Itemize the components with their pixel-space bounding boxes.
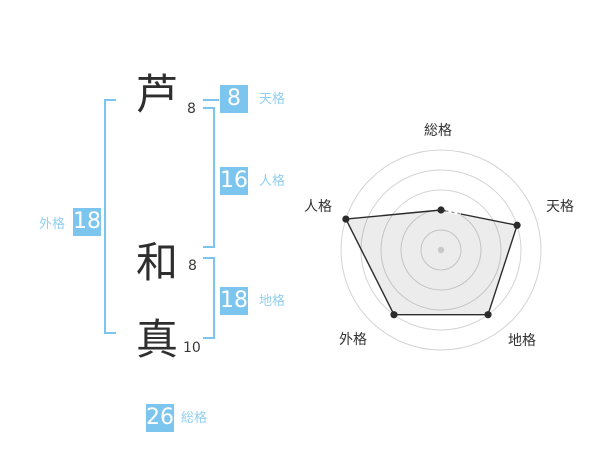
radar-vertex-dot — [342, 215, 349, 222]
radar-axis-label: 地格 — [508, 333, 536, 349]
name-char-1: 芦 — [136, 74, 178, 116]
jinkaku-bracket — [203, 107, 215, 248]
radar-chart: 総格天格地格外格人格 — [296, 105, 586, 395]
gaikaku-label: 外格 — [39, 218, 65, 231]
gaikaku-value-box: 18 — [73, 208, 101, 236]
radar-axis-label: 人格 — [304, 199, 332, 215]
radar-center-dot — [438, 247, 444, 253]
soukaku-value-box: 26 — [146, 404, 174, 432]
radar-data-polygon — [346, 210, 517, 315]
name-fortune-chart: 芦 8 和 8 真 10 8 天格 16 人格 18 地格 外格 18 26 総… — [0, 0, 600, 470]
tenkaku-value-box: 8 — [220, 85, 248, 113]
radar-axis-label: 総格 — [424, 123, 452, 139]
name-char-3: 真 — [136, 319, 178, 361]
stroke-count-2: 8 — [188, 259, 197, 273]
chikaku-bracket — [203, 257, 215, 339]
stroke-count-1: 8 — [187, 102, 196, 116]
soukaku-label: 総格 — [181, 412, 207, 425]
radar-axis-label: 外格 — [339, 332, 367, 348]
tenkaku-tick — [203, 99, 219, 101]
name-char-2: 和 — [136, 242, 178, 284]
radar-axis-label: 天格 — [546, 199, 574, 215]
stroke-count-3: 10 — [183, 341, 201, 355]
radar-vertex-dot — [484, 311, 491, 318]
jinkaku-label: 人格 — [259, 175, 285, 188]
gaikaku-bracket — [104, 99, 116, 334]
chikaku-value-box: 18 — [220, 287, 248, 315]
radar-vertex-dot — [437, 206, 444, 213]
chikaku-label: 地格 — [259, 295, 285, 308]
radar-vertex-dot — [513, 222, 520, 229]
tenkaku-label: 天格 — [259, 93, 285, 106]
radar-vertex-dot — [390, 311, 397, 318]
jinkaku-value-box: 16 — [220, 167, 248, 195]
